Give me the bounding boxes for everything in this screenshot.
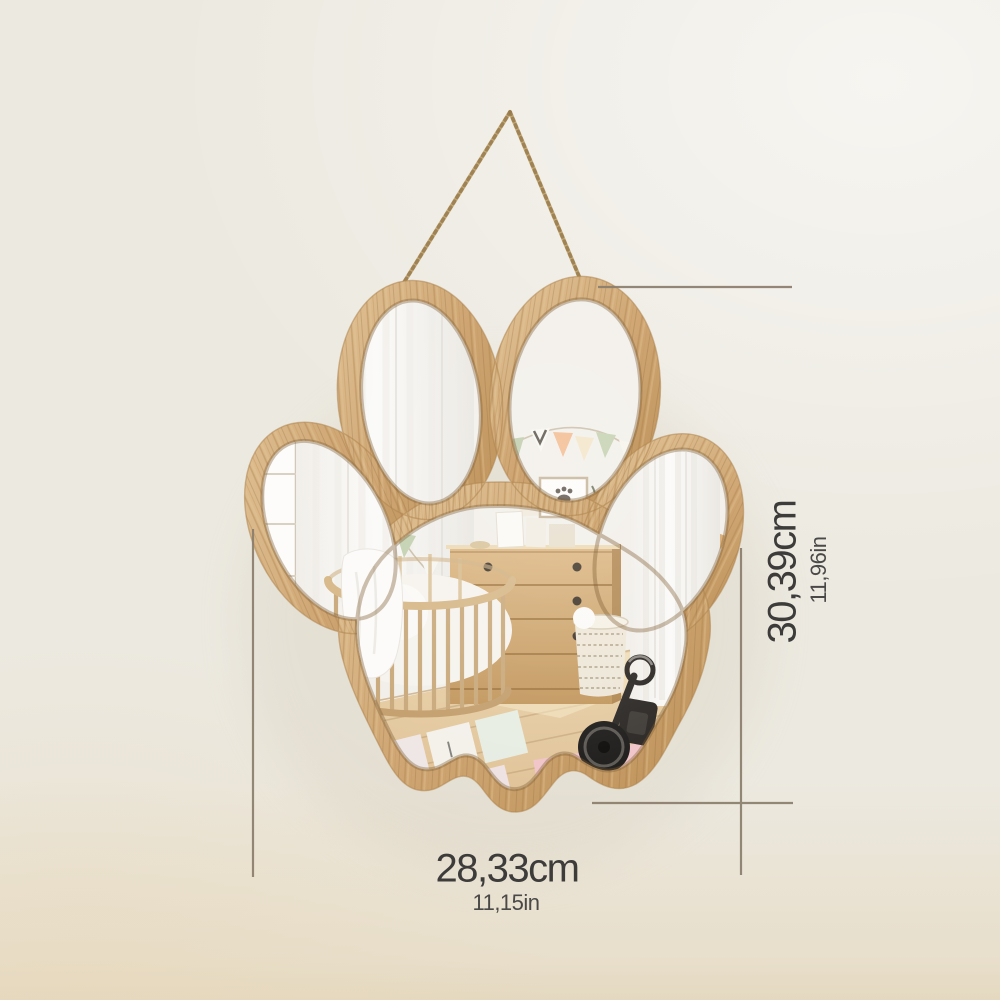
width-inch-label: 11,15in [472, 890, 539, 916]
height-inch-label: 11,96in [806, 536, 832, 603]
height-cm-label: 30,39cm [761, 501, 806, 644]
width-cm-label: 28,33cm [436, 847, 579, 892]
product-photo: a l b a e [0, 0, 1000, 1000]
